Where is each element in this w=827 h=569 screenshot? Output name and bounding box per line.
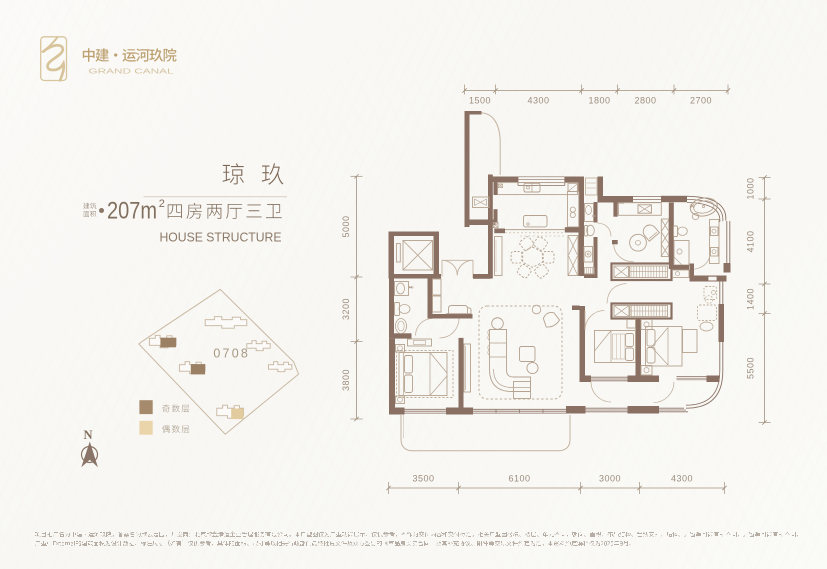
svg-text:4100: 4100 [746, 230, 756, 252]
svg-text:2800: 2800 [634, 96, 656, 106]
svg-text:1800: 1800 [588, 96, 610, 106]
svg-text:5500: 5500 [746, 357, 756, 379]
svg-text:4300: 4300 [527, 96, 549, 106]
svg-text:3800: 3800 [341, 369, 351, 391]
svg-text:2700: 2700 [690, 96, 712, 106]
svg-text:6100: 6100 [508, 474, 530, 484]
svg-text:3000: 3000 [599, 474, 621, 484]
svg-text:5000: 5000 [341, 215, 351, 237]
svg-text:3200: 3200 [341, 298, 351, 320]
svg-text:4300: 4300 [671, 474, 693, 484]
svg-text:1400: 1400 [746, 288, 756, 310]
svg-text:1000: 1000 [746, 177, 756, 199]
svg-text:1500: 1500 [469, 96, 491, 106]
svg-text:3500: 3500 [412, 474, 434, 484]
